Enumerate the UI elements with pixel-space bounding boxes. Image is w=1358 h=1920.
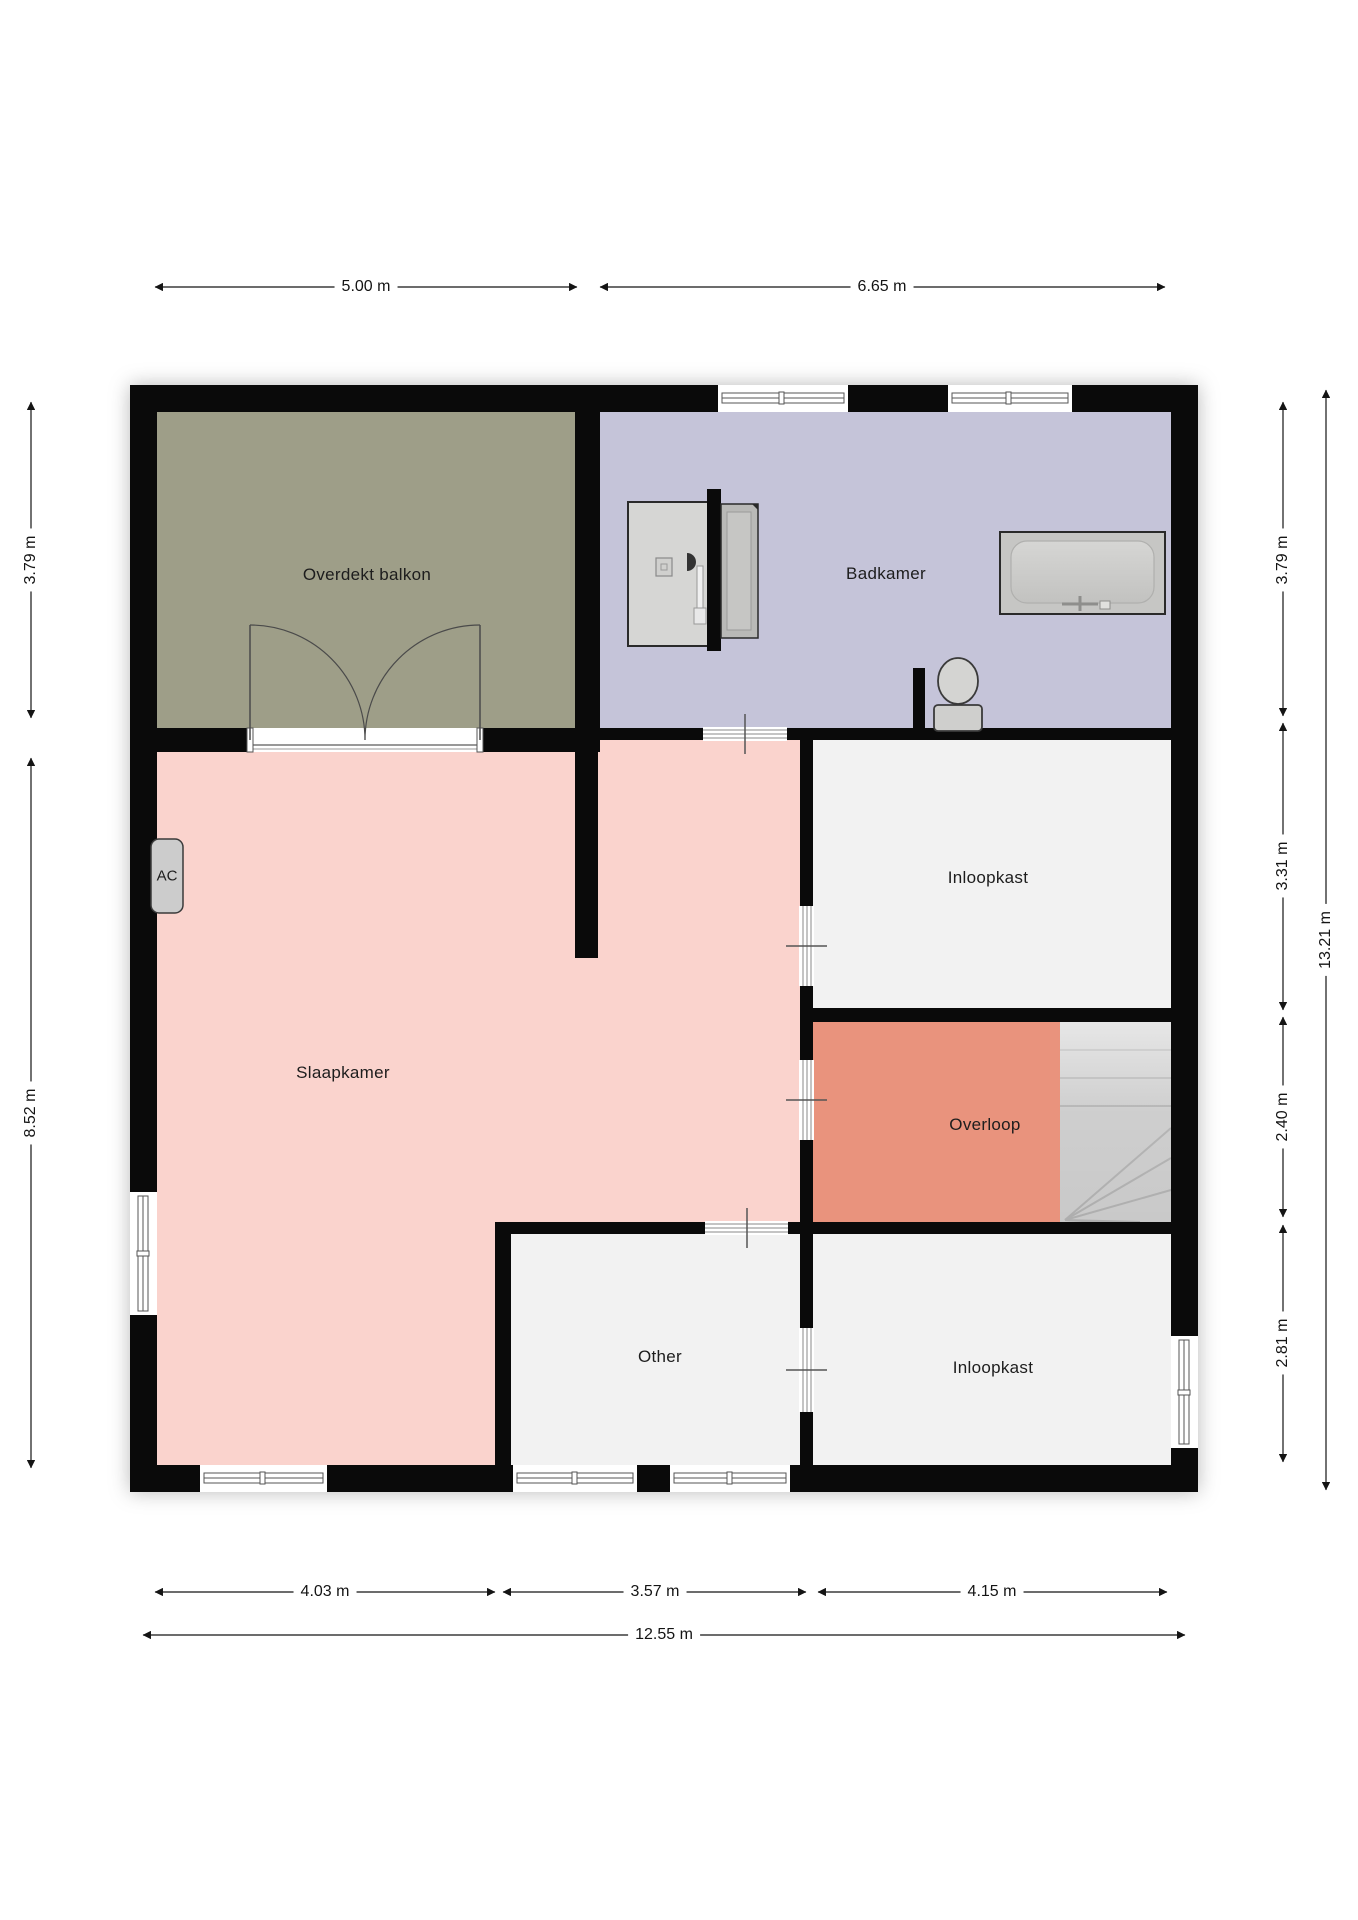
wall-bathroom-bottom bbox=[600, 728, 1171, 740]
dim-label-right-1: 3.79 m bbox=[1273, 529, 1293, 592]
dim-label-bottom-1: 4.03 m bbox=[294, 1582, 357, 1602]
room-overloop bbox=[813, 1022, 1060, 1222]
wall-exterior-left bbox=[130, 385, 157, 1492]
dim-label-right-2: 3.31 m bbox=[1273, 835, 1293, 898]
wall-toilet-stub bbox=[913, 668, 925, 728]
ac-unit-label: AC bbox=[157, 868, 178, 885]
window-top-2 bbox=[948, 385, 1072, 412]
wall-balcony-bathroom bbox=[575, 412, 600, 752]
dim-label-bottom-2: 3.57 m bbox=[624, 1582, 687, 1602]
room-label-overdekt-balkon: Overdekt balkon bbox=[303, 565, 431, 585]
window-right bbox=[1171, 1336, 1198, 1448]
room-label-overloop: Overloop bbox=[949, 1115, 1020, 1135]
wall-other-west bbox=[495, 1234, 511, 1465]
dim-label-bottom-3: 4.15 m bbox=[961, 1582, 1024, 1602]
room-label-inloopkast-bottom: Inloopkast bbox=[953, 1358, 1034, 1378]
window-bottom-2 bbox=[513, 1465, 637, 1492]
room-label-badkamer: Badkamer bbox=[846, 564, 926, 584]
staircase bbox=[1060, 1022, 1171, 1222]
bathtub bbox=[1000, 532, 1165, 614]
shower bbox=[628, 489, 758, 651]
wall-overloop-bottom bbox=[495, 1222, 1171, 1234]
room-label-slaapkamer: Slaapkamer bbox=[296, 1063, 390, 1083]
wall-exterior-right bbox=[1171, 385, 1198, 1492]
dim-label-left-1: 3.79 m bbox=[21, 529, 41, 592]
wall-bedroom-stub bbox=[575, 740, 598, 958]
toilet bbox=[934, 658, 982, 731]
dim-label-bottom-total: 12.55 m bbox=[628, 1625, 700, 1645]
dim-label-right-3: 2.40 m bbox=[1273, 1086, 1293, 1149]
window-bottom-1 bbox=[200, 1465, 327, 1492]
wall-inloopkast-overloop bbox=[800, 1008, 1171, 1022]
room-inloopkast-bottom bbox=[813, 1234, 1171, 1465]
room-label-inloopkast-top: Inloopkast bbox=[948, 868, 1029, 888]
window-bottom-3 bbox=[670, 1465, 790, 1492]
floorplan-page: Overdekt balkon Badkamer Slaapkamer Inlo… bbox=[0, 0, 1358, 1920]
dim-label-top-2: 6.65 m bbox=[851, 277, 914, 297]
window-top-1 bbox=[718, 385, 848, 412]
dim-label-top-1: 5.00 m bbox=[335, 277, 398, 297]
dim-label-right-4: 2.81 m bbox=[1273, 1312, 1293, 1375]
room-label-other: Other bbox=[638, 1347, 682, 1367]
dim-label-left-2: 8.52 m bbox=[21, 1082, 41, 1145]
window-left bbox=[130, 1192, 157, 1315]
dim-label-right-total: 13.21 m bbox=[1316, 904, 1336, 976]
